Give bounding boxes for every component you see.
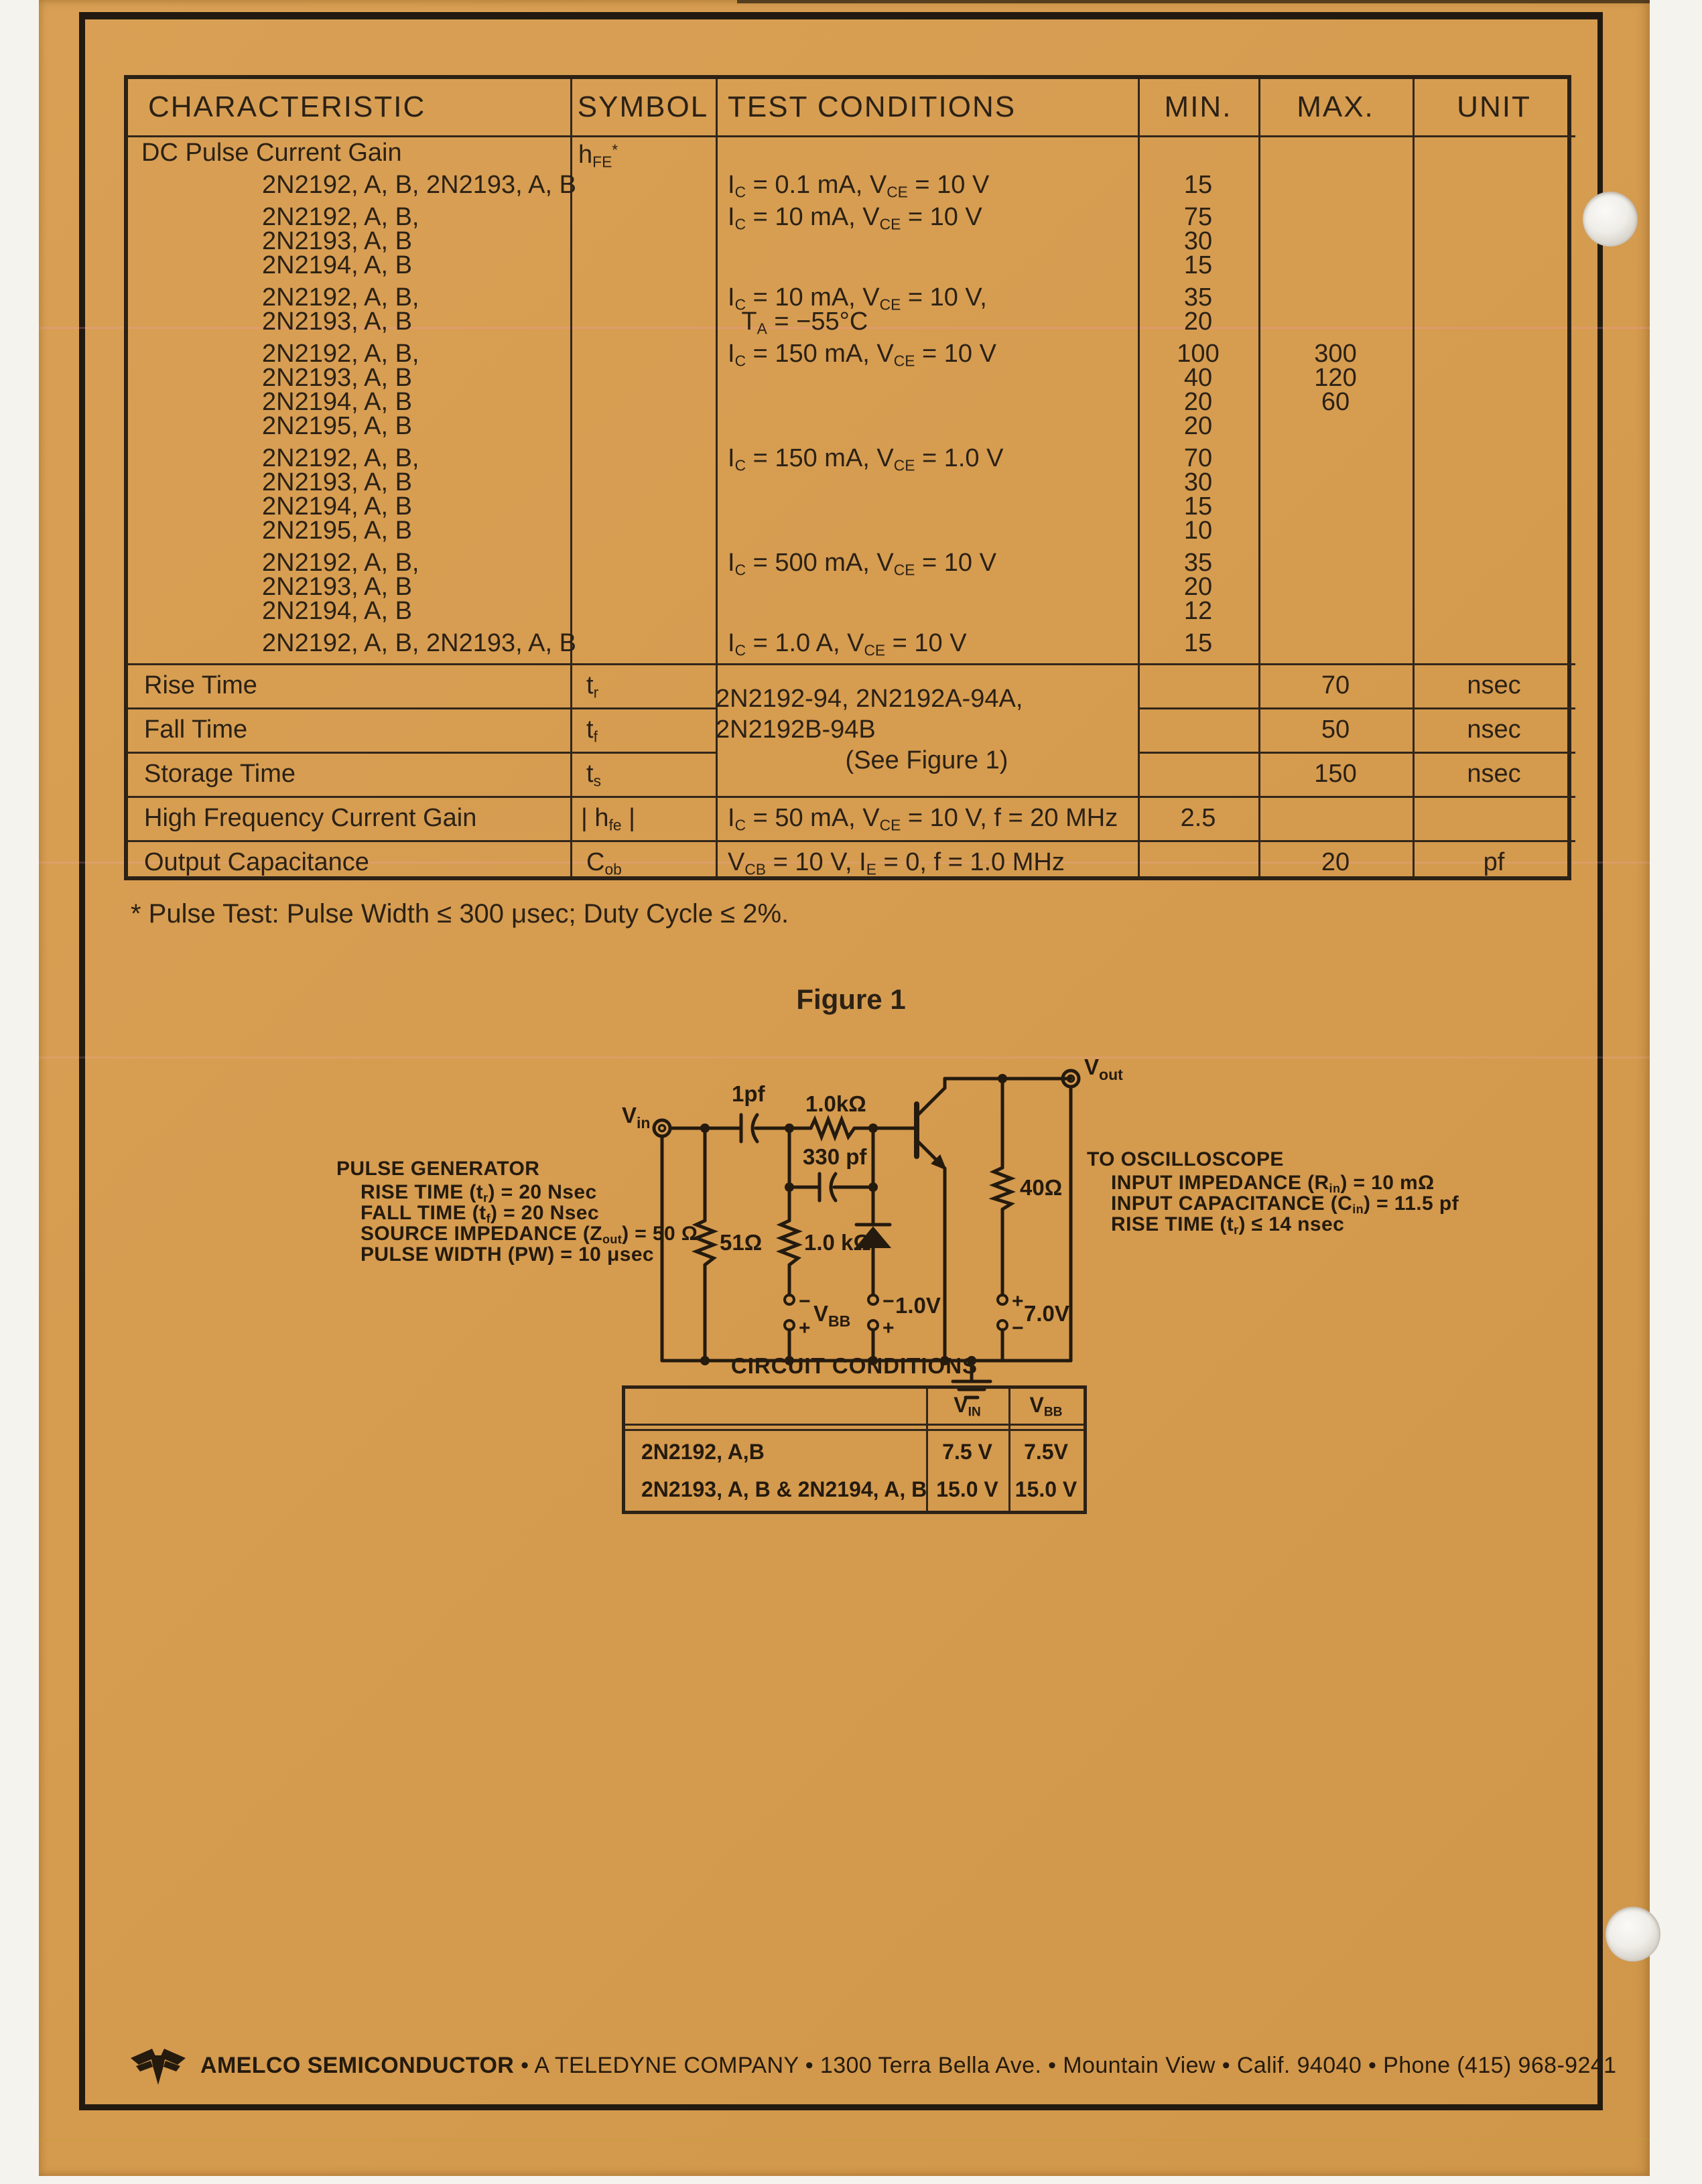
- row-symbol: tr: [586, 663, 707, 707]
- model-line: 2N2193, A, B: [141, 366, 564, 390]
- model-line: 2N2192, A, B,: [141, 446, 564, 470]
- row-condition: IC = 50 mA, VCE = 10 V, f = 20 MHz: [728, 796, 1136, 840]
- hfe-group: 15: [1138, 631, 1258, 655]
- footer-text: AMELCO SEMICONDUCTOR • A TELEDYNE COMPAN…: [200, 2053, 1616, 2079]
- punch-hole-top: [1583, 192, 1638, 247]
- min-value: 70: [1138, 446, 1258, 470]
- condition-line: IC = 1.0 A, VCE = 10 V: [728, 631, 1130, 655]
- model-line: 2N2193, A, B: [141, 310, 564, 334]
- circuit-conditions-table: VIN VBB 2N2192, A,B 7.5 V 7.5V 2N2193, A…: [622, 1385, 1087, 1514]
- row-symbol: ts: [586, 752, 707, 796]
- model-line: 2N2192, A, B, 2N2193, A, B: [141, 173, 564, 197]
- column-header-characteristic: CHARACTERISTIC: [148, 79, 426, 135]
- model-line: 2N2194, A, B: [141, 253, 564, 277]
- device-cell: 2N2192, A,B: [641, 1440, 765, 1464]
- hfe-group: 2N2192, A, B,2N2193, A, B2N2194, A, B: [141, 205, 564, 277]
- min-value: 10: [1138, 519, 1258, 543]
- transistor-collector: [917, 1079, 945, 1116]
- hfe-group: 352012: [1138, 551, 1258, 623]
- hfe-group: 70301510: [1138, 446, 1258, 543]
- column-header-max: MAX.: [1258, 79, 1413, 135]
- hfe-group: [1258, 631, 1413, 655]
- hfe-min-column: 1575301535201004020207030151035201215: [1138, 141, 1258, 655]
- spec-table: CHARACTERISTIC SYMBOL TEST CONDITIONS MI…: [124, 75, 1571, 880]
- collector-supply-label: 7.0V: [1024, 1301, 1069, 1326]
- vbb-cell: 7.5V: [1008, 1440, 1084, 1464]
- hfe-characteristic-column: DC Pulse Current Gain 2N2192, A, B, 2N21…: [141, 141, 564, 655]
- spacer-line: [728, 141, 1130, 165]
- column-header-min: MIN.: [1138, 79, 1258, 135]
- row-name: Storage Time: [144, 752, 546, 796]
- vbb-column-header: VBB: [1008, 1393, 1084, 1418]
- characteristic-name: DC Pulse Current Gain: [141, 141, 564, 165]
- row-min: 2.5: [1138, 796, 1258, 840]
- series-resistor-label: 1.0kΩ: [805, 1091, 866, 1116]
- row-symbol: Cob: [586, 840, 707, 884]
- hfe-group: [1258, 446, 1413, 543]
- model-line: 2N2194, A, B: [141, 599, 564, 623]
- vbb-label: VBB: [813, 1301, 850, 1330]
- junction-dot: [868, 1123, 878, 1133]
- hfe-test-conditions-column: IC = 0.1 mA, VCE = 10 VIC = 10 mA, VCE =…: [728, 141, 1130, 655]
- row-name: Fall Time: [144, 707, 546, 752]
- min-value: 35: [1138, 551, 1258, 575]
- hfe-group: [1258, 205, 1413, 277]
- min-value: 100: [1138, 342, 1258, 366]
- min-value: 15: [1138, 631, 1258, 655]
- switching-models: 2N2192-94, 2N2192A-94A, 2N2192B-94B: [716, 683, 1138, 745]
- spacer-line: [1258, 141, 1413, 165]
- row-unit: nsec: [1413, 663, 1575, 707]
- footer: AMELCO SEMICONDUCTOR • A TELEDYNE COMPAN…: [131, 2045, 1616, 2086]
- vbb-cell: 15.0 V: [1008, 1477, 1084, 1502]
- vin-cell: 15.0 V: [926, 1477, 1008, 1502]
- hfe-group: IC = 1.0 A, VCE = 10 V: [728, 631, 1130, 655]
- spacer-line: [1138, 141, 1258, 165]
- vin-column-header: VIN: [926, 1393, 1008, 1418]
- load-resistor-icon: [994, 1168, 1011, 1209]
- table-rule: [625, 1429, 1084, 1431]
- company-address: • A TELEDYNE COMPANY • 1300 Terra Bella …: [514, 2053, 1616, 2078]
- model-line: 2N2195, A, B: [141, 414, 564, 438]
- min-value: 20: [1138, 390, 1258, 414]
- scanned-datasheet-page: CHARACTERISTIC SYMBOL TEST CONDITIONS MI…: [0, 0, 1702, 2184]
- model-line: 2N2193, A, B: [141, 470, 564, 494]
- condition-line: IC = 10 mA, VCE = 10 V,: [728, 285, 1130, 310]
- hfe-group: 30012060: [1258, 342, 1413, 438]
- vin-cell: 7.5 V: [926, 1440, 1008, 1464]
- vout-label: Vout: [1084, 1054, 1123, 1083]
- oscilloscope-title: TO OSCILLOSCOPE: [1087, 1147, 1459, 1172]
- base-resistor-icon: [781, 1221, 798, 1265]
- min-value: 30: [1138, 470, 1258, 494]
- supply-plus-sign: +: [1012, 1290, 1024, 1312]
- min-value: 20: [1138, 414, 1258, 438]
- series-resistor-icon: [811, 1119, 854, 1137]
- model-line: 2N2192, A, B,: [141, 205, 564, 229]
- hfe-group: 2N2192, A, B,2N2193, A, B2N2194, A, B2N2…: [141, 446, 564, 543]
- column-header-unit: UNIT: [1413, 79, 1575, 135]
- row-max: 70: [1258, 663, 1413, 707]
- row-unit: nsec: [1413, 707, 1575, 752]
- condition-line: IC = 0.1 mA, VCE = 10 V: [728, 173, 1130, 197]
- min-value: 30: [1138, 229, 1258, 253]
- hfe-group: 2N2192, A, B, 2N2193, A, B: [141, 631, 564, 655]
- column-header-test-conditions: TEST CONDITIONS: [728, 79, 1016, 135]
- circuit-conditions: CIRCUIT CONDITIONS VIN VBB 2N2192, A,B 7…: [622, 1353, 1087, 1514]
- model-line: 2N2195, A, B: [141, 519, 564, 543]
- vbb-minus-sign: −: [799, 1290, 811, 1312]
- min-value: 15: [1138, 173, 1258, 197]
- model-line: 2N2192, A, B,: [141, 342, 564, 366]
- row-symbol: | hfe |: [581, 796, 708, 840]
- model-line: 2N2192, A, B,: [141, 551, 564, 575]
- speedup-cap-label: 330 pf: [803, 1144, 867, 1169]
- punch-hole-bottom: [1606, 1907, 1660, 1962]
- shunt-resistor-label: 51Ω: [720, 1230, 762, 1255]
- model-line: 2N2193, A, B: [141, 575, 564, 599]
- hfe-group: IC = 10 mA, VCE = 10 V: [728, 205, 1130, 277]
- hfe-group: [1258, 285, 1413, 334]
- device-cell: 2N2193, A, B & 2N2194, A, B: [641, 1477, 927, 1502]
- note-line: RISE TIME (tr) ≤ 14 nsec: [1111, 1214, 1459, 1235]
- hfe-group: IC = 500 mA, VCE = 10 V: [728, 551, 1130, 623]
- shunt-resistor-icon: [696, 1221, 714, 1265]
- row-unit: pf: [1413, 840, 1575, 884]
- supply-minus-sign: −: [1012, 1317, 1024, 1339]
- max-value: 300: [1258, 342, 1413, 366]
- junction-dot: [700, 1123, 710, 1133]
- row-max: 50: [1258, 707, 1413, 752]
- row-max: 150: [1258, 752, 1413, 796]
- row-name: High Frequency Current Gain: [144, 796, 573, 840]
- diode-bias-plus-sign: +: [882, 1317, 895, 1339]
- oscilloscope-notes: TO OSCILLOSCOPE INPUT IMPEDANCE (Rin) = …: [1087, 1147, 1459, 1235]
- condition-line: IC = 150 mA, VCE = 1.0 V: [728, 446, 1130, 470]
- junction-dot: [998, 1074, 1007, 1083]
- condition-line: TA = −55°C: [728, 310, 1130, 334]
- min-value: 20: [1138, 575, 1258, 599]
- hfe-group: [1258, 173, 1413, 197]
- hfe-group: 2N2192, A, B,2N2193, A, B: [141, 285, 564, 334]
- model-line: 2N2194, A, B: [141, 494, 564, 519]
- scan-edge-artifact: [737, 0, 1650, 3]
- hfe-group: 753015: [1138, 205, 1258, 277]
- vin-terminal-inner: [659, 1125, 665, 1132]
- pulse-test-footnote: * Pulse Test: Pulse Width ≤ 300 μsec; Du…: [131, 899, 789, 929]
- row-symbol: tf: [586, 707, 707, 752]
- max-value: 60: [1258, 390, 1413, 414]
- column-header-symbol: SYMBOL: [570, 79, 716, 135]
- circuit-conditions-title: CIRCUIT CONDITIONS: [622, 1353, 1087, 1379]
- base-resistor-label: 1.0 kΩ: [804, 1230, 871, 1255]
- vin-terminal: [654, 1120, 670, 1136]
- row-name: Output Capacitance: [144, 840, 573, 884]
- max-value: 120: [1258, 366, 1413, 390]
- diode-bias-label: 1.0V: [895, 1293, 941, 1318]
- hfe-group: 15: [1138, 173, 1258, 197]
- switching-see-figure: (See Figure 1): [846, 745, 1008, 776]
- condition-line: IC = 150 mA, VCE = 10 V: [728, 342, 1130, 366]
- note-line: INPUT CAPACITANCE (Cin) = 11.5 pf: [1111, 1193, 1459, 1214]
- junction-dot: [868, 1182, 878, 1192]
- model-line: 2N2193, A, B: [141, 229, 564, 253]
- min-value: 15: [1138, 494, 1258, 519]
- min-value: 12: [1138, 599, 1258, 623]
- hfe-group: 2N2192, A, B,2N2193, A, B2N2194, A, B: [141, 551, 564, 623]
- min-value: 15: [1138, 253, 1258, 277]
- coupling-cap-label: 1pf: [732, 1081, 766, 1106]
- min-value: 40: [1138, 366, 1258, 390]
- table-rule: [128, 135, 1575, 137]
- junction-dot: [785, 1123, 794, 1133]
- row-name: Rise Time: [144, 663, 546, 707]
- company-name: AMELCO SEMICONDUCTOR: [200, 2053, 514, 2078]
- hfe-group: IC = 0.1 mA, VCE = 10 V: [728, 173, 1130, 197]
- figure-title: Figure 1: [0, 983, 1702, 1016]
- row-condition: VCB = 10 V, IE = 0, f = 1.0 MHz: [728, 840, 1136, 884]
- hfe-group: 3520: [1138, 285, 1258, 334]
- hfe-group: 2N2192, A, B, 2N2193, A, B: [141, 173, 564, 197]
- min-value: 75: [1138, 205, 1258, 229]
- hfe-max-column: 30012060: [1258, 141, 1413, 655]
- row-unit: nsec: [1413, 752, 1575, 796]
- min-value: 20: [1138, 310, 1258, 334]
- table-rule: [625, 1424, 1084, 1426]
- hfe-symbol: hFE*: [578, 141, 706, 169]
- model-line: 2N2192, A, B, 2N2193, A, B: [141, 631, 564, 655]
- model-line: 2N2192, A, B,: [141, 285, 564, 310]
- hfe-group: IC = 10 mA, VCE = 10 V, TA = −55°C: [728, 285, 1130, 334]
- condition-line: IC = 10 mA, VCE = 10 V: [728, 205, 1130, 229]
- hfe-group: [1258, 551, 1413, 623]
- junction-dot: [785, 1182, 794, 1192]
- hfe-group: 2N2192, A, B,2N2193, A, B2N2194, A, B2N2…: [141, 342, 564, 438]
- hfe-group: IC = 150 mA, VCE = 1.0 V: [728, 446, 1130, 543]
- amelco-logo-icon: [131, 2045, 186, 2086]
- min-value: 35: [1138, 285, 1258, 310]
- vbb-plus-sign: +: [799, 1317, 811, 1339]
- switching-test-conditions: 2N2192-94, 2N2192A-94A, 2N2192B-94B (See…: [716, 663, 1138, 796]
- vin-label: Vin: [622, 1103, 650, 1132]
- note-line: INPUT IMPEDANCE (Rin) = 10 mΩ: [1111, 1172, 1459, 1193]
- condition-line: IC = 500 mA, VCE = 10 V: [728, 551, 1130, 575]
- load-resistor-label: 40Ω: [1020, 1175, 1062, 1200]
- hfe-group: 100402020: [1138, 342, 1258, 438]
- diode-bias-minus-sign: −: [882, 1290, 895, 1312]
- row-max: 20: [1258, 840, 1413, 884]
- model-line: 2N2194, A, B: [141, 390, 564, 414]
- hfe-group: IC = 150 mA, VCE = 10 V: [728, 342, 1130, 438]
